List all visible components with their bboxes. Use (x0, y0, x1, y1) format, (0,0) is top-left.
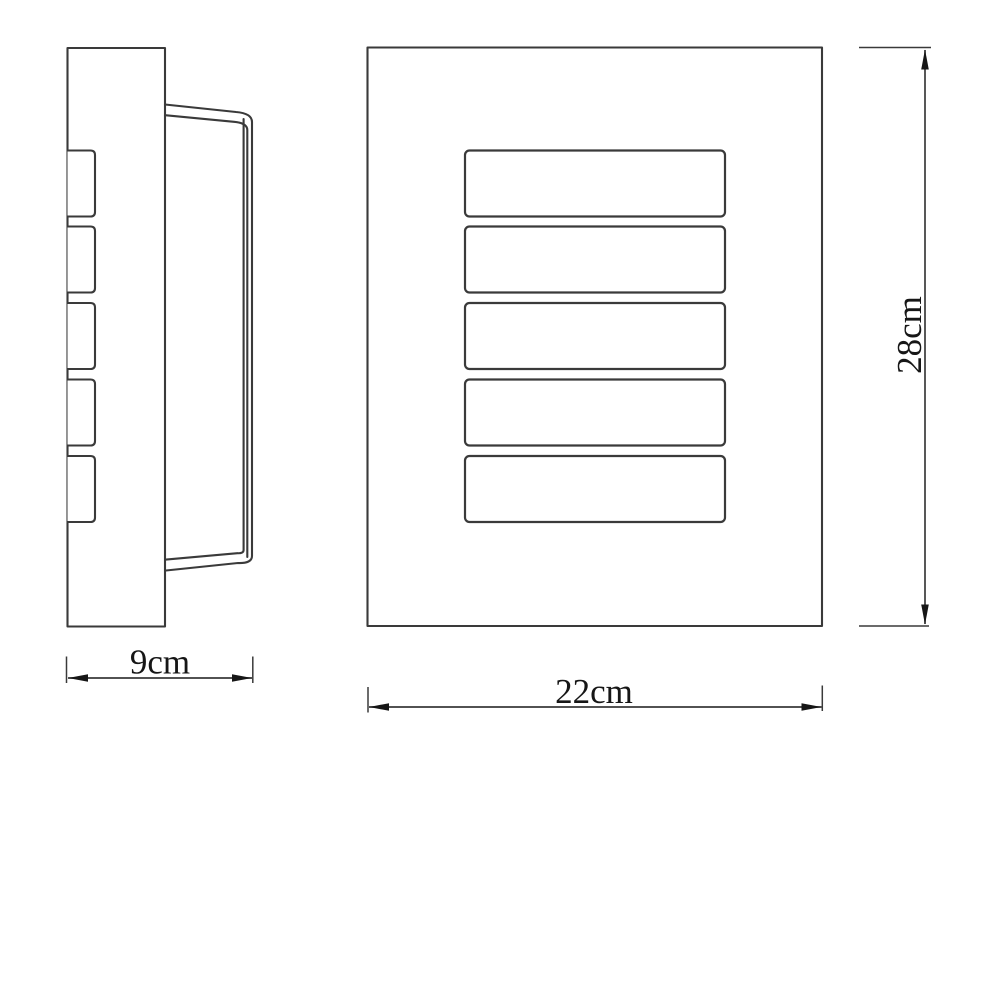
side-view-slat-5 (68, 456, 96, 522)
side-view-slat-1 (68, 151, 96, 217)
dimension-label-side-width: 9cm (130, 643, 190, 682)
front-view-slot-5 (465, 456, 725, 522)
front-view (368, 48, 823, 627)
dimension-side-width: 9cm (67, 643, 253, 684)
front-view-slot-2 (465, 227, 725, 293)
front-view-slot-1 (465, 151, 725, 217)
dim-arrow-right (232, 674, 252, 682)
dim-arrow-down (921, 605, 929, 625)
side-view-faceplate-outer (165, 105, 252, 571)
dim-arrow-up (921, 50, 929, 70)
dimension-front-width: 22cm (368, 672, 822, 713)
dim-arrow-left (68, 674, 88, 682)
dimension-front-height: 28cm (859, 48, 931, 627)
front-view-slot-3 (465, 303, 725, 369)
dim-arrow-left (369, 703, 389, 711)
side-view-slat-4 (68, 380, 96, 446)
dimension-label-front-height: 28cm (890, 296, 929, 374)
technical-drawing-canvas: 9cm 22cm 28cm (0, 0, 1000, 1000)
dim-arrow-right (802, 703, 822, 711)
side-view-slat-3 (68, 303, 96, 369)
side-view (68, 48, 253, 627)
front-view-slot-4 (465, 380, 725, 446)
side-view-faceplate-inner (166, 119, 244, 560)
dimension-label-front-width: 22cm (555, 672, 633, 711)
side-view-faceplate-middle (165, 115, 247, 557)
side-view-slat-2 (68, 227, 96, 293)
